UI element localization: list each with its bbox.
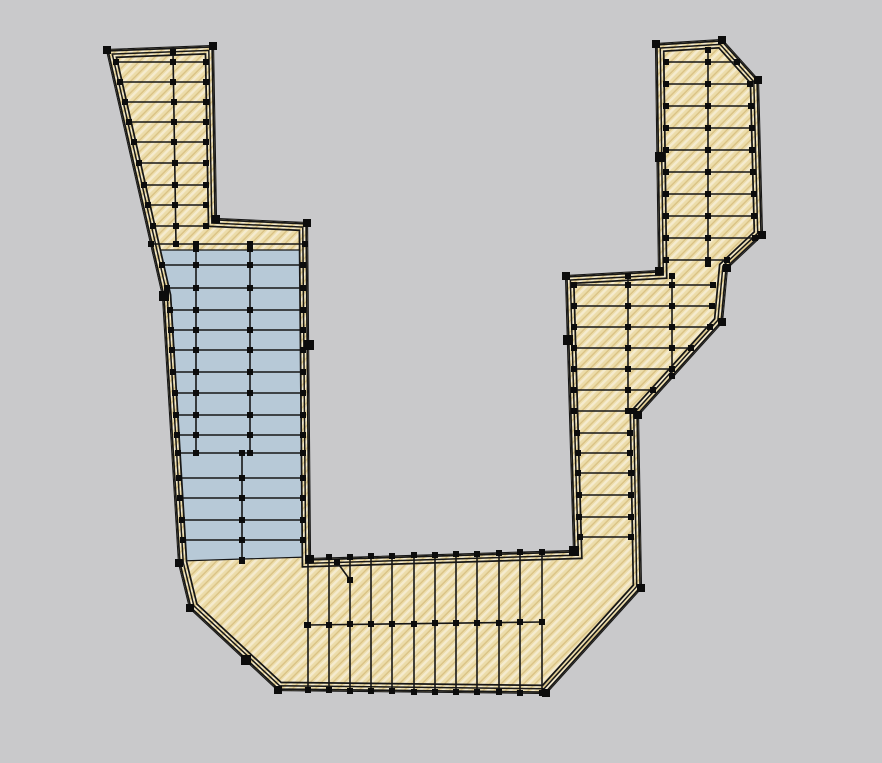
outline-corner-node — [758, 231, 766, 239]
joist-cross-node — [347, 621, 353, 627]
joist-end-node — [625, 408, 631, 414]
joist-end-node — [752, 235, 758, 241]
joist-cross-node — [193, 369, 199, 375]
joist-end-node — [300, 327, 306, 333]
joist-end-node — [575, 450, 581, 456]
joist-end-node — [145, 202, 151, 208]
joist-end-node — [203, 223, 209, 229]
outline-corner-node — [637, 584, 645, 592]
joist-end-node — [625, 273, 631, 279]
edge-tick-node — [159, 291, 169, 301]
joist-end-node — [168, 327, 174, 333]
joist-cross-node — [669, 303, 675, 309]
joist-cross-node — [193, 432, 199, 438]
joist-end-node — [411, 689, 417, 695]
joist-cross-node — [193, 390, 199, 396]
joist-cross-node — [705, 213, 711, 219]
joist-cross-node — [669, 366, 675, 372]
joist-cross-node — [705, 235, 711, 241]
joist-end-node — [628, 534, 634, 540]
joist-cross-node — [625, 387, 631, 393]
joist-end-node — [571, 324, 577, 330]
joist-end-node — [326, 687, 332, 693]
joist-cross-node — [625, 282, 631, 288]
outline-corner-node — [718, 36, 726, 44]
joist-end-node — [496, 689, 502, 695]
joist-end-node — [175, 450, 181, 456]
joist-cross-node — [625, 366, 631, 372]
joist-end-node — [170, 369, 176, 375]
outline-corner-node — [186, 604, 194, 612]
joist-end-node — [663, 213, 669, 219]
joist-cross-node — [705, 125, 711, 131]
joist-end-node — [203, 160, 209, 166]
joist-end-node — [669, 373, 675, 379]
joist-end-node — [150, 223, 156, 229]
joist-end-node — [688, 345, 694, 351]
joist-end-node — [131, 139, 137, 145]
joist-end-node — [663, 191, 669, 197]
joist-end-node — [300, 450, 306, 456]
joist-end-node — [203, 119, 209, 125]
joist-cross-node — [239, 475, 245, 481]
outline-corner-node — [209, 42, 217, 50]
joist-end-node — [193, 450, 199, 456]
joist-end-node — [326, 554, 332, 560]
joist-cross-node — [173, 223, 179, 229]
joist-cross-node — [193, 262, 199, 268]
joist-end-node — [517, 690, 523, 696]
joist-cross-node — [705, 169, 711, 175]
joist-cross-node — [247, 347, 253, 353]
joist-cross-node — [705, 147, 711, 153]
joist-cross-node — [171, 119, 177, 125]
joist-end-node — [539, 549, 545, 555]
joist-end-node — [747, 81, 753, 87]
joist-cross-node — [193, 327, 199, 333]
joist-end-node — [628, 492, 634, 498]
joist-end-node — [389, 688, 395, 694]
joist-end-node — [576, 514, 582, 520]
outline-corner-node — [212, 215, 220, 223]
joist-cross-node — [705, 103, 711, 109]
joist-end-node — [750, 169, 756, 175]
joist-end-node — [368, 688, 374, 694]
joist-end-node — [709, 303, 715, 309]
joist-end-node — [173, 241, 179, 247]
joist-end-node — [334, 559, 340, 565]
joist-cross-node — [239, 517, 245, 523]
joist-end-node — [571, 366, 577, 372]
joist-end-node — [122, 99, 128, 105]
joist-cross-node — [247, 412, 253, 418]
joist-cross-node — [705, 257, 711, 263]
joist-cross-node — [170, 59, 176, 65]
joist-cross-node — [171, 99, 177, 105]
outline-corner-node — [303, 219, 311, 227]
joist-end-node — [305, 687, 311, 693]
joist-cross-node — [247, 432, 253, 438]
joist-end-node — [347, 554, 353, 560]
joist-end-node — [627, 450, 633, 456]
joist-cross-node — [705, 81, 711, 87]
joist-end-node — [576, 492, 582, 498]
joist-end-node — [628, 514, 634, 520]
joist-end-node — [751, 213, 757, 219]
joist-cross-node — [193, 412, 199, 418]
edge-tick-node — [563, 335, 573, 345]
outline-corner-node — [652, 40, 660, 48]
joist-end-node — [300, 262, 306, 268]
joist-cross-node — [247, 307, 253, 313]
joist-end-node — [663, 169, 669, 175]
joist-cross-node — [193, 347, 199, 353]
joist-end-node — [203, 182, 209, 188]
joist-end-node — [164, 285, 170, 291]
drawing-canvas[interactable] — [0, 0, 882, 763]
outline-corner-node — [634, 411, 642, 419]
joist-cross-node — [411, 621, 417, 627]
joist-cross-node — [669, 345, 675, 351]
outline-corner-node — [754, 76, 762, 84]
joist-cross-node — [705, 59, 711, 65]
joist-cross-node — [625, 324, 631, 330]
edge-tick-node — [655, 152, 665, 162]
joist-cross-node — [247, 327, 253, 333]
joist-cross-node — [239, 537, 245, 543]
joist-end-node — [705, 47, 711, 53]
joist-end-node — [169, 347, 175, 353]
joist-cross-node — [389, 621, 395, 627]
outline-corner-node — [723, 264, 731, 272]
joist-cross-node — [172, 182, 178, 188]
joist-end-node — [368, 553, 374, 559]
joist-end-node — [571, 345, 577, 351]
joist-cross-node — [368, 621, 374, 627]
joist-end-node — [203, 79, 209, 85]
joist-cross-node — [247, 390, 253, 396]
joist-end-node — [247, 450, 253, 456]
joist-end-node — [571, 387, 577, 393]
joist-end-node — [172, 390, 178, 396]
joist-cross-node — [193, 307, 199, 313]
joist-cross-node — [193, 285, 199, 291]
joist-end-node — [734, 59, 740, 65]
joist-end-node — [300, 495, 306, 501]
joist-end-node — [180, 537, 186, 543]
joist-end-node — [126, 119, 132, 125]
edge-tick-node — [241, 655, 251, 665]
joist-end-node — [173, 412, 179, 418]
joist-end-node — [300, 537, 306, 543]
joist-end-node — [571, 303, 577, 309]
edge-tick-node — [304, 340, 314, 350]
joist-end-node — [474, 551, 480, 557]
joist-end-node — [177, 495, 183, 501]
joist-end-node — [669, 273, 675, 279]
joist-cross-node — [247, 262, 253, 268]
joist-end-node — [141, 182, 147, 188]
joist-cross-node — [432, 620, 438, 626]
joist-cross-node — [453, 620, 459, 626]
outline-corner-node — [274, 686, 282, 694]
joist-end-node — [663, 103, 669, 109]
joist-cross-node — [496, 620, 502, 626]
joist-end-node — [203, 139, 209, 145]
joist-end-node — [300, 432, 306, 438]
joist-end-node — [176, 475, 182, 481]
joist-cross-node — [172, 202, 178, 208]
joist-end-node — [300, 412, 306, 418]
joist-end-node — [300, 517, 306, 523]
outline-corner-node — [542, 689, 550, 697]
joist-end-node — [411, 552, 417, 558]
outline-corner-node — [655, 267, 663, 275]
joist-end-node — [170, 49, 176, 55]
joist-cross-node — [705, 191, 711, 197]
joist-end-node — [474, 689, 480, 695]
joist-end-node — [117, 79, 123, 85]
joist-end-node — [663, 257, 669, 263]
viewport — [0, 0, 882, 763]
joist-cross-node — [326, 622, 332, 628]
joist-end-node — [179, 517, 185, 523]
joist-end-node — [347, 688, 353, 694]
joist-end-node — [710, 282, 716, 288]
joist-cross-node — [172, 160, 178, 166]
joist-end-node — [663, 125, 669, 131]
joist-cross-node — [625, 303, 631, 309]
joist-end-node — [453, 689, 459, 695]
joist-cross-node — [239, 557, 245, 563]
joist-cross-node — [539, 619, 545, 625]
joist-end-node — [577, 534, 583, 540]
joist-end-node — [159, 262, 165, 268]
joist-end-node — [203, 99, 209, 105]
outline-corner-node — [306, 555, 314, 563]
joist-end-node — [174, 432, 180, 438]
joist-end-node — [749, 147, 755, 153]
joist-end-node — [300, 475, 306, 481]
joist-cross-node — [669, 324, 675, 330]
joist-end-node — [148, 241, 154, 247]
joist-cross-node — [239, 495, 245, 501]
joist-end-node — [707, 324, 713, 330]
joist-end-node — [300, 285, 306, 291]
outline-corner-node — [562, 272, 570, 280]
joist-end-node — [432, 689, 438, 695]
joist-end-node — [517, 549, 523, 555]
joist-cross-node — [625, 345, 631, 351]
joist-end-node — [300, 307, 306, 313]
joist-end-node — [663, 81, 669, 87]
joist-cross-node — [193, 241, 199, 247]
joist-cross-node — [247, 369, 253, 375]
joist-end-node — [453, 551, 459, 557]
joist-cross-node — [517, 619, 523, 625]
joist-cross-node — [474, 620, 480, 626]
joist-end-node — [113, 59, 119, 65]
joist-end-node — [167, 307, 173, 313]
joist-end-node — [203, 202, 209, 208]
joist-end-node — [389, 553, 395, 559]
joist-end-node — [663, 235, 669, 241]
joist-cross-node — [305, 622, 311, 628]
joist-end-node — [748, 103, 754, 109]
joist-end-node — [302, 241, 308, 247]
joist-end-node — [627, 430, 633, 436]
joist-cross-node — [669, 282, 675, 288]
joist-end-node — [650, 387, 656, 393]
joist-cross-node — [170, 79, 176, 85]
outline-corner-node — [175, 559, 183, 567]
joist-cross-node — [247, 241, 253, 247]
joist-end-node — [496, 550, 502, 556]
joist-end-node — [628, 470, 634, 476]
joist-end-node — [571, 408, 577, 414]
joist-end-node — [432, 552, 438, 558]
joist-cross-node — [247, 285, 253, 291]
joist-end-node — [239, 450, 245, 456]
joist-end-node — [347, 577, 353, 583]
joist-end-node — [203, 59, 209, 65]
joist-end-node — [751, 191, 757, 197]
joist-cross-node — [171, 139, 177, 145]
joist-end-node — [574, 430, 580, 436]
joist-end-node — [300, 369, 306, 375]
joist-end-node — [575, 470, 581, 476]
joist-end-node — [571, 282, 577, 288]
joist-end-node — [749, 125, 755, 131]
joist-end-node — [136, 160, 142, 166]
joist-end-node — [300, 390, 306, 396]
joist-end-node — [663, 59, 669, 65]
joist-end-node — [724, 257, 730, 263]
outline-corner-node — [718, 318, 726, 326]
outline-corner-node — [103, 46, 111, 54]
edge-tick-node — [569, 546, 579, 556]
